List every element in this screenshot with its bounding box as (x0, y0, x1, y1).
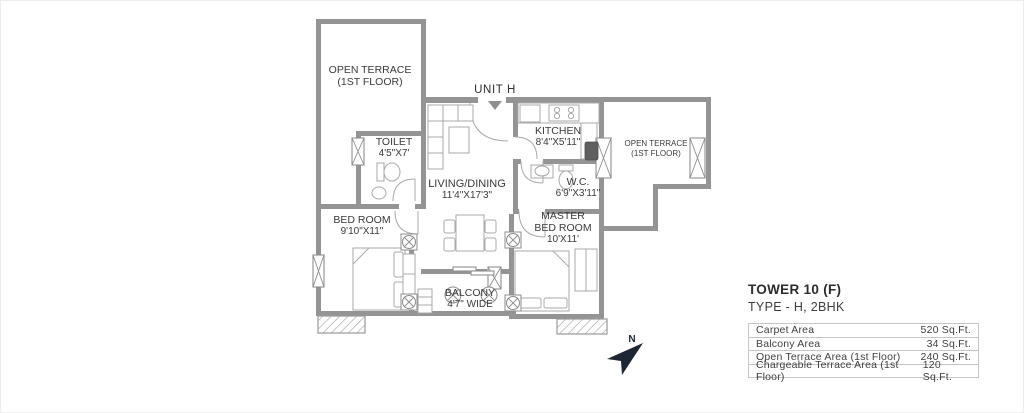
area-label: Carpet Area (756, 324, 814, 336)
floor-plan-page: N OPEN TERRACE (1ST FLOOR) UNIT H TOILET… (0, 0, 1024, 413)
bedroom-furniture (353, 234, 417, 310)
entrance-marker-icon (488, 101, 502, 110)
label-bedroom: BED ROOM 9'10"X11" (333, 214, 390, 238)
area-label: Chargeable Terrace Area (1st Floor) (756, 359, 923, 383)
unit-info-panel: TOWER 10 (F) TYPE - H, 2BHK Carpet Area … (748, 282, 979, 378)
label-master-bedroom: MASTER BED ROOM 10'X11' (534, 210, 591, 246)
north-arrow-icon: N (607, 334, 643, 375)
label-toilet: TOILET 4'5"X7' (376, 136, 413, 160)
door-swing-icon (393, 179, 415, 201)
washbasin-icon (372, 187, 386, 199)
label-unit: UNIT H (474, 84, 516, 96)
table-row: Balcony Area 34 Sq.Ft. (749, 337, 978, 351)
area-value: 520 Sq.Ft. (921, 324, 971, 336)
bed-icon (353, 248, 405, 310)
stove-icon (549, 105, 579, 121)
bench-icon (418, 289, 432, 313)
unit-type-subtitle: TYPE - H, 2BHK (748, 300, 979, 314)
column-icon (401, 294, 417, 310)
area-label: Balcony Area (756, 338, 820, 350)
washbasin-icon (531, 165, 553, 178)
window-icon (488, 267, 501, 289)
label-open-terrace-right: OPEN TERRACE (1ST FLOOR) (625, 139, 688, 158)
wardrobe-icon (403, 254, 415, 294)
coffee-table-icon (449, 127, 469, 153)
bed-icon (515, 251, 569, 311)
label-balcony: BALCONY 4'7" WIDE (445, 287, 495, 311)
door-swing-icon (515, 137, 537, 159)
tower-title: TOWER 10 (F) (748, 282, 979, 297)
table-row: Chargeable Terrace Area (1st Floor) 120 … (749, 364, 978, 378)
column-icon (505, 232, 521, 248)
column-icon (401, 234, 417, 250)
door-swing-icon (470, 103, 508, 141)
window-icon (690, 138, 705, 178)
table-row: Carpet Area 520 Sq.Ft. (749, 324, 978, 337)
wardrobe-icon (575, 249, 597, 291)
hatch-planter-icon (318, 316, 365, 333)
label-kitchen: KITCHEN 8'4"X5'11" (535, 125, 581, 149)
area-table: Carpet Area 520 Sq.Ft. Balcony Area 34 S… (748, 323, 979, 378)
north-label: N (628, 334, 635, 345)
dining-table-icon (444, 215, 496, 251)
window-icon (352, 138, 364, 165)
door-swing-icon (395, 211, 418, 234)
toilet-icon (377, 163, 400, 181)
area-value: 120 Sq.Ft. (923, 359, 971, 383)
sink-icon (585, 142, 598, 160)
label-wc: W.C. 6'9"X3'11" (556, 176, 601, 200)
kitchen-platform-icon (520, 105, 540, 122)
label-living-dining: LIVING/DINING 11'4"X17'3" (428, 178, 506, 202)
area-value: 34 Sq.Ft. (927, 338, 971, 350)
label-open-terrace-left: OPEN TERRACE (1ST FLOOR) (329, 64, 412, 88)
window-icon (313, 255, 324, 287)
column-icon (505, 295, 521, 311)
hatch-planter-icon (557, 319, 607, 334)
toilet-fixtures (372, 163, 400, 199)
